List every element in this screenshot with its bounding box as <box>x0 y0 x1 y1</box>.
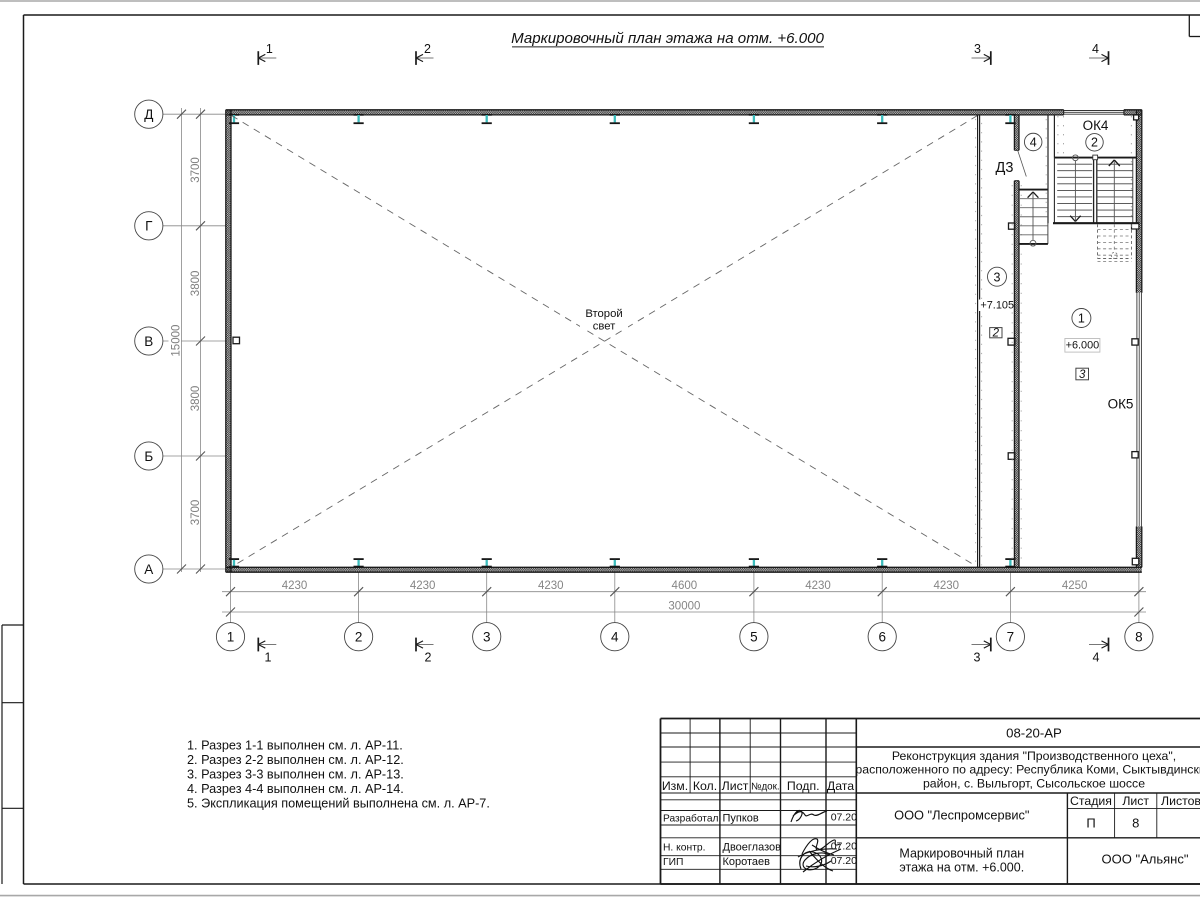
svg-text:07.20: 07.20 <box>831 855 857 867</box>
svg-text:Стадия: Стадия <box>1070 794 1112 808</box>
svg-text:08-20-АР: 08-20-АР <box>1006 726 1062 741</box>
svg-text:3800: 3800 <box>190 271 202 297</box>
svg-text:Б: Б <box>144 449 153 464</box>
svg-text:Маркировочный план этажа на от: Маркировочный план этажа на отм. +6.000 <box>511 30 824 47</box>
svg-text:30000: 30000 <box>668 601 700 613</box>
svg-text:2: 2 <box>424 42 431 56</box>
svg-text:3. Разрез 3-3 выполнен см. л.: 3. Разрез 3-3 выполнен см. л. АР-13. <box>187 768 404 782</box>
svg-text:4230: 4230 <box>538 580 564 592</box>
svg-text:П: П <box>1086 816 1095 831</box>
svg-text:Реконструкция здания "Производ: Реконструкция здания "Производственного … <box>892 749 1176 763</box>
svg-text:ООО "Леспромсервис": ООО "Леспромсервис" <box>894 808 1029 823</box>
svg-text:Маркировочный план: Маркировочный план <box>899 847 1024 861</box>
svg-text:5. Экспликация помещений выпол: 5. Экспликация помещений выполнена см. л… <box>187 797 490 811</box>
svg-text:4250: 4250 <box>1062 580 1088 592</box>
svg-text:Пупков: Пупков <box>723 813 759 825</box>
svg-text:07.20: 07.20 <box>831 812 857 824</box>
svg-text:А: А <box>144 562 153 577</box>
svg-text:4230: 4230 <box>805 580 831 592</box>
svg-text:07.20: 07.20 <box>831 841 857 853</box>
svg-text:3800: 3800 <box>190 386 202 412</box>
svg-text:3: 3 <box>974 651 981 665</box>
svg-text:4: 4 <box>1093 651 1100 665</box>
svg-text:№док.: №док. <box>751 782 780 793</box>
svg-text:Н. контр.: Н. контр. <box>663 843 706 854</box>
svg-text:1: 1 <box>266 42 273 56</box>
svg-text:3: 3 <box>994 270 1001 284</box>
svg-text:4: 4 <box>611 630 619 645</box>
svg-text:Дата: Дата <box>827 779 854 793</box>
svg-text:3: 3 <box>974 42 981 56</box>
svg-text:6: 6 <box>878 630 886 645</box>
svg-text:2: 2 <box>355 630 363 645</box>
svg-text:7: 7 <box>1007 630 1015 645</box>
svg-text:расположенного по адресу: Респ: расположенного по адресу: Республика Ком… <box>855 763 1200 777</box>
svg-text:3700: 3700 <box>190 157 202 183</box>
svg-text:В: В <box>144 334 153 349</box>
svg-text:Изм.: Изм. <box>662 779 688 793</box>
svg-text:свет: свет <box>593 320 616 332</box>
svg-text:1: 1 <box>1078 312 1085 326</box>
svg-text:1: 1 <box>227 630 235 645</box>
svg-text:8: 8 <box>1132 816 1139 831</box>
svg-text:2: 2 <box>1091 136 1098 150</box>
svg-text:1. Разрез 1-1 выполнен см. л.: 1. Разрез 1-1 выполнен см. л. АР-11. <box>187 739 403 753</box>
svg-text:2. Разрез 2-2 выполнен см. л.: 2. Разрез 2-2 выполнен см. л. АР-12. <box>187 753 404 767</box>
svg-text:3700: 3700 <box>190 500 202 526</box>
svg-text:4: 4 <box>1030 135 1037 149</box>
svg-text:Двоеглазов: Двоеглазов <box>723 842 782 854</box>
svg-text:4. Разрез 4-4 выполнен см. л.: 4. Разрез 4-4 выполнен см. л. АР-14. <box>187 782 404 796</box>
svg-text:3: 3 <box>1079 369 1086 381</box>
svg-text:2: 2 <box>992 327 1000 339</box>
svg-text:8: 8 <box>1135 630 1143 645</box>
svg-text:2: 2 <box>425 651 432 665</box>
svg-text:Д: Д <box>144 107 153 122</box>
svg-text:ГИП: ГИП <box>663 857 683 868</box>
svg-text:4230: 4230 <box>282 580 308 592</box>
svg-text:ООО "Альянс": ООО "Альянс" <box>1102 852 1189 867</box>
svg-text:Коротаев: Коротаев <box>723 856 771 868</box>
svg-text:этажа на отм. +6.000.: этажа на отм. +6.000. <box>899 861 1024 875</box>
svg-text:Лист: Лист <box>1122 794 1149 808</box>
svg-text:Г: Г <box>145 219 153 234</box>
svg-text:15000: 15000 <box>171 325 183 357</box>
svg-text:Листов: Листов <box>1161 794 1200 808</box>
svg-text:4230: 4230 <box>410 580 436 592</box>
svg-text:1: 1 <box>265 651 272 665</box>
svg-text:ОК4: ОК4 <box>1083 118 1109 133</box>
svg-text:3: 3 <box>483 630 491 645</box>
svg-text:Второй: Второй <box>585 308 622 320</box>
svg-text:4600: 4600 <box>672 580 698 592</box>
svg-text:+6.000: +6.000 <box>1066 340 1100 352</box>
svg-text:район, с. Выльгорт, Сысольское: район, с. Выльгорт, Сысольское шоссе <box>923 776 1145 790</box>
svg-text:Подп.: Подп. <box>787 779 820 793</box>
svg-text:Кол.: Кол. <box>693 779 717 793</box>
svg-text:Лист: Лист <box>722 779 749 793</box>
svg-text:+7.105: +7.105 <box>980 300 1014 312</box>
svg-text:4230: 4230 <box>934 580 960 592</box>
svg-text:Д3: Д3 <box>996 160 1014 176</box>
svg-text:ОК5: ОК5 <box>1108 397 1134 412</box>
svg-text:Разработал: Разработал <box>663 813 719 825</box>
svg-text:5: 5 <box>750 630 758 645</box>
svg-text:4: 4 <box>1092 42 1099 56</box>
